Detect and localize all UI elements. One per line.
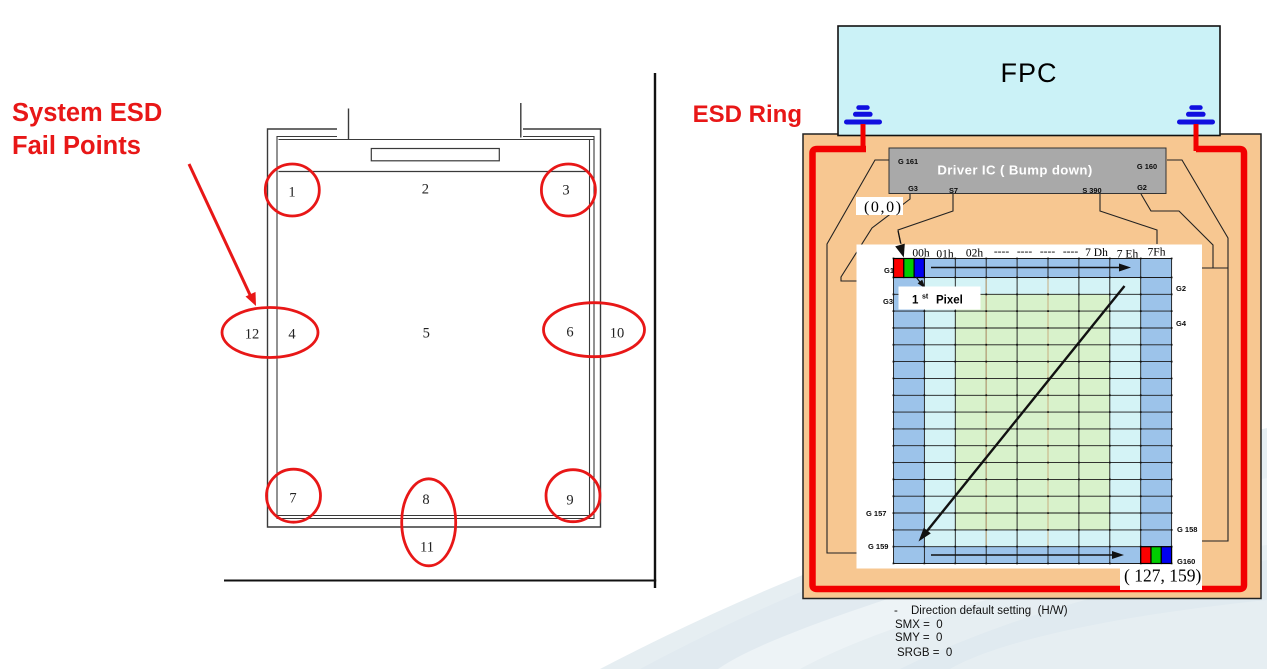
svg-text:1: 1 <box>912 295 919 307</box>
svg-text:5: 5 <box>423 326 430 342</box>
svg-text:----: ---- <box>1017 246 1032 258</box>
svg-text:02h: 02h <box>966 248 984 260</box>
svg-text:12: 12 <box>245 327 260 343</box>
svg-text:3: 3 <box>562 183 569 199</box>
svg-text:7: 7 <box>289 491 296 507</box>
svg-text:G3: G3 <box>883 297 893 306</box>
svg-text:G 161: G 161 <box>898 157 918 166</box>
svg-text:10: 10 <box>610 326 625 342</box>
svg-text:G2: G2 <box>1176 284 1186 293</box>
svg-text:01h: 01h <box>936 249 954 261</box>
svg-text:7 Dh: 7 Dh <box>1085 247 1108 259</box>
svg-text:7 Eh: 7 Eh <box>1117 249 1139 261</box>
svg-text:7Fh: 7Fh <box>1148 247 1166 259</box>
svg-text:Pixel: Pixel <box>936 295 963 307</box>
svg-text:G 158: G 158 <box>1177 525 1197 534</box>
svg-text:SRGB = 0: SRGB = 0 <box>897 647 952 659</box>
svg-text:G 157: G 157 <box>866 509 886 518</box>
svg-text:FPC: FPC <box>1001 58 1058 88</box>
svg-text:st: st <box>922 294 929 301</box>
svg-text:S 390: S 390 <box>1082 186 1101 195</box>
svg-text:G 159: G 159 <box>868 542 888 551</box>
svg-text:Fail Points: Fail Points <box>12 132 141 160</box>
svg-text:System ESD: System ESD <box>12 99 162 127</box>
svg-text:ESD Ring: ESD Ring <box>693 101 802 128</box>
svg-text:----: ---- <box>1040 246 1055 258</box>
svg-text:( 127, 159): ( 127, 159) <box>1124 566 1201 586</box>
svg-text:Direction default setting (H/: Direction default setting (H/W) <box>911 605 1068 617</box>
svg-text:G4: G4 <box>1176 319 1187 328</box>
svg-text:00h: 00h <box>912 248 930 260</box>
svg-text:1: 1 <box>288 185 295 201</box>
svg-text:G3: G3 <box>908 184 918 193</box>
svg-text:-: - <box>894 605 898 617</box>
svg-text:Driver IC ( Bump down): Driver IC ( Bump down) <box>937 163 1092 178</box>
svg-text:8: 8 <box>422 492 429 508</box>
svg-text:----: ---- <box>994 246 1009 258</box>
svg-text:G 160: G 160 <box>1137 162 1157 171</box>
svg-text:(0,0): (0,0) <box>864 199 903 216</box>
svg-text:4: 4 <box>288 327 296 343</box>
svg-text:----: ---- <box>1063 246 1078 258</box>
svg-text:2: 2 <box>422 182 429 198</box>
svg-text:11: 11 <box>420 540 434 556</box>
svg-text:G2: G2 <box>1137 183 1147 192</box>
svg-text:G1: G1 <box>884 266 894 275</box>
svg-text:9: 9 <box>566 493 573 509</box>
svg-text:6: 6 <box>566 325 573 341</box>
svg-text:S7: S7 <box>949 186 958 195</box>
svg-text:SMX = 0: SMX = 0 <box>895 619 943 631</box>
svg-text:SMY = 0: SMY = 0 <box>895 632 942 644</box>
